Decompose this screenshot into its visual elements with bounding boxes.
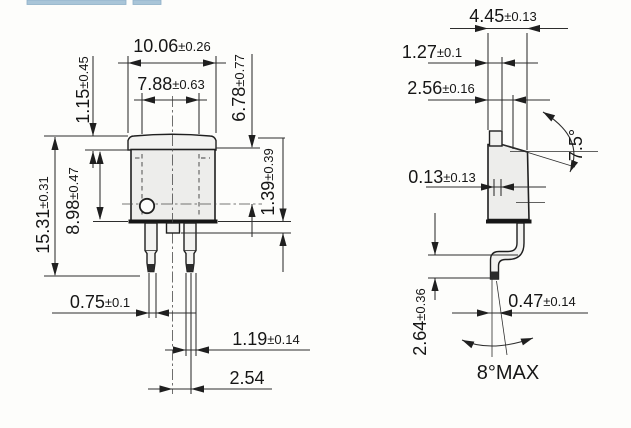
package-tab xyxy=(128,134,216,150)
link-remnant-2[interactable] xyxy=(133,0,161,5)
dim-label-body-width: 7.88±0.63 xyxy=(137,74,204,94)
dim-label-body-height: 8.98±0.47 xyxy=(63,167,83,234)
dim-side-overall-thickness: 4.45±0.13 xyxy=(450,6,568,150)
mounting-hole xyxy=(140,199,154,213)
dim-label-tab-width: 10.06±0.26 xyxy=(133,36,210,56)
side-lead xyxy=(491,223,525,279)
side-package-outline xyxy=(486,131,598,357)
dim-label-stub-length: 1.39±0.39 xyxy=(258,148,278,215)
dim-side-foot-height: 2.64±0.36 xyxy=(410,213,518,356)
dim-label-draft-angle: 7.5° xyxy=(566,129,586,161)
dim-label-standoff: 0.13±0.13 xyxy=(408,167,475,187)
left-lead xyxy=(145,223,157,272)
dim-label-body-thickness: 2.56±0.16 xyxy=(407,78,474,98)
package-dimension-drawing: 10.06±0.26 7.88±0.63 1.15±0.45 8.98±0.47 xyxy=(0,0,631,428)
dim-label-lead-pitch: 2.54 xyxy=(229,368,264,388)
side-tab-lip xyxy=(490,131,503,146)
dim-side-splay-angle: 8°MAX xyxy=(462,338,539,384)
dim-label-overall-height: 15.31±0.31 xyxy=(33,176,53,253)
datasheet-drawing-page: 10.06±0.26 7.88±0.63 1.15±0.45 8.98±0.47 xyxy=(0,0,631,428)
front-package-outline xyxy=(122,96,262,394)
dim-label-lead-width: 1.19±0.14 xyxy=(232,329,299,349)
dim-side-lead-thickness: 0.47±0.14 xyxy=(452,291,588,317)
dim-side-body-thickness: 2.56±0.16 xyxy=(407,78,550,149)
link-remnant-1[interactable] xyxy=(27,0,126,5)
dim-front-lead-tip-width: 0.75±0.1 xyxy=(52,273,196,318)
dim-label-lead-tip-width: 0.75±0.1 xyxy=(70,292,130,312)
dim-label-upper-height: 6.78±0.77 xyxy=(229,54,249,121)
dim-label-splay-angle: 8°MAX xyxy=(477,362,539,384)
center-lead-stub xyxy=(167,223,180,233)
dim-front-tab-height: 1.15±0.45 xyxy=(44,56,131,168)
truncated-header-links xyxy=(27,0,161,5)
dim-label-lead-thickness: 0.47±0.14 xyxy=(508,291,575,311)
dim-side-draft-angle: 7.5° xyxy=(543,112,586,172)
dim-front-lead-width: 1.19±0.14 xyxy=(165,273,310,356)
dim-label-tab-height: 1.15±0.45 xyxy=(73,56,93,123)
dim-front-overall-height: 15.31±0.31 xyxy=(33,137,140,276)
side-view: 4.45±0.13 1.27±0.1 2.56±0.16 0.13±0.13 xyxy=(402,6,598,384)
dim-label-overall-thickness: 4.45±0.13 xyxy=(469,6,536,26)
front-view: 10.06±0.26 7.88±0.63 1.15±0.45 8.98±0.47 xyxy=(33,36,310,394)
dim-front-body-width: 7.88±0.63 xyxy=(134,74,207,134)
dim-label-tab-thickness: 1.27±0.1 xyxy=(402,42,462,62)
right-lead xyxy=(184,223,196,272)
dim-front-upper-height: 6.78±0.77 xyxy=(216,54,260,237)
dim-label-foot-height: 2.64±0.36 xyxy=(410,288,430,355)
